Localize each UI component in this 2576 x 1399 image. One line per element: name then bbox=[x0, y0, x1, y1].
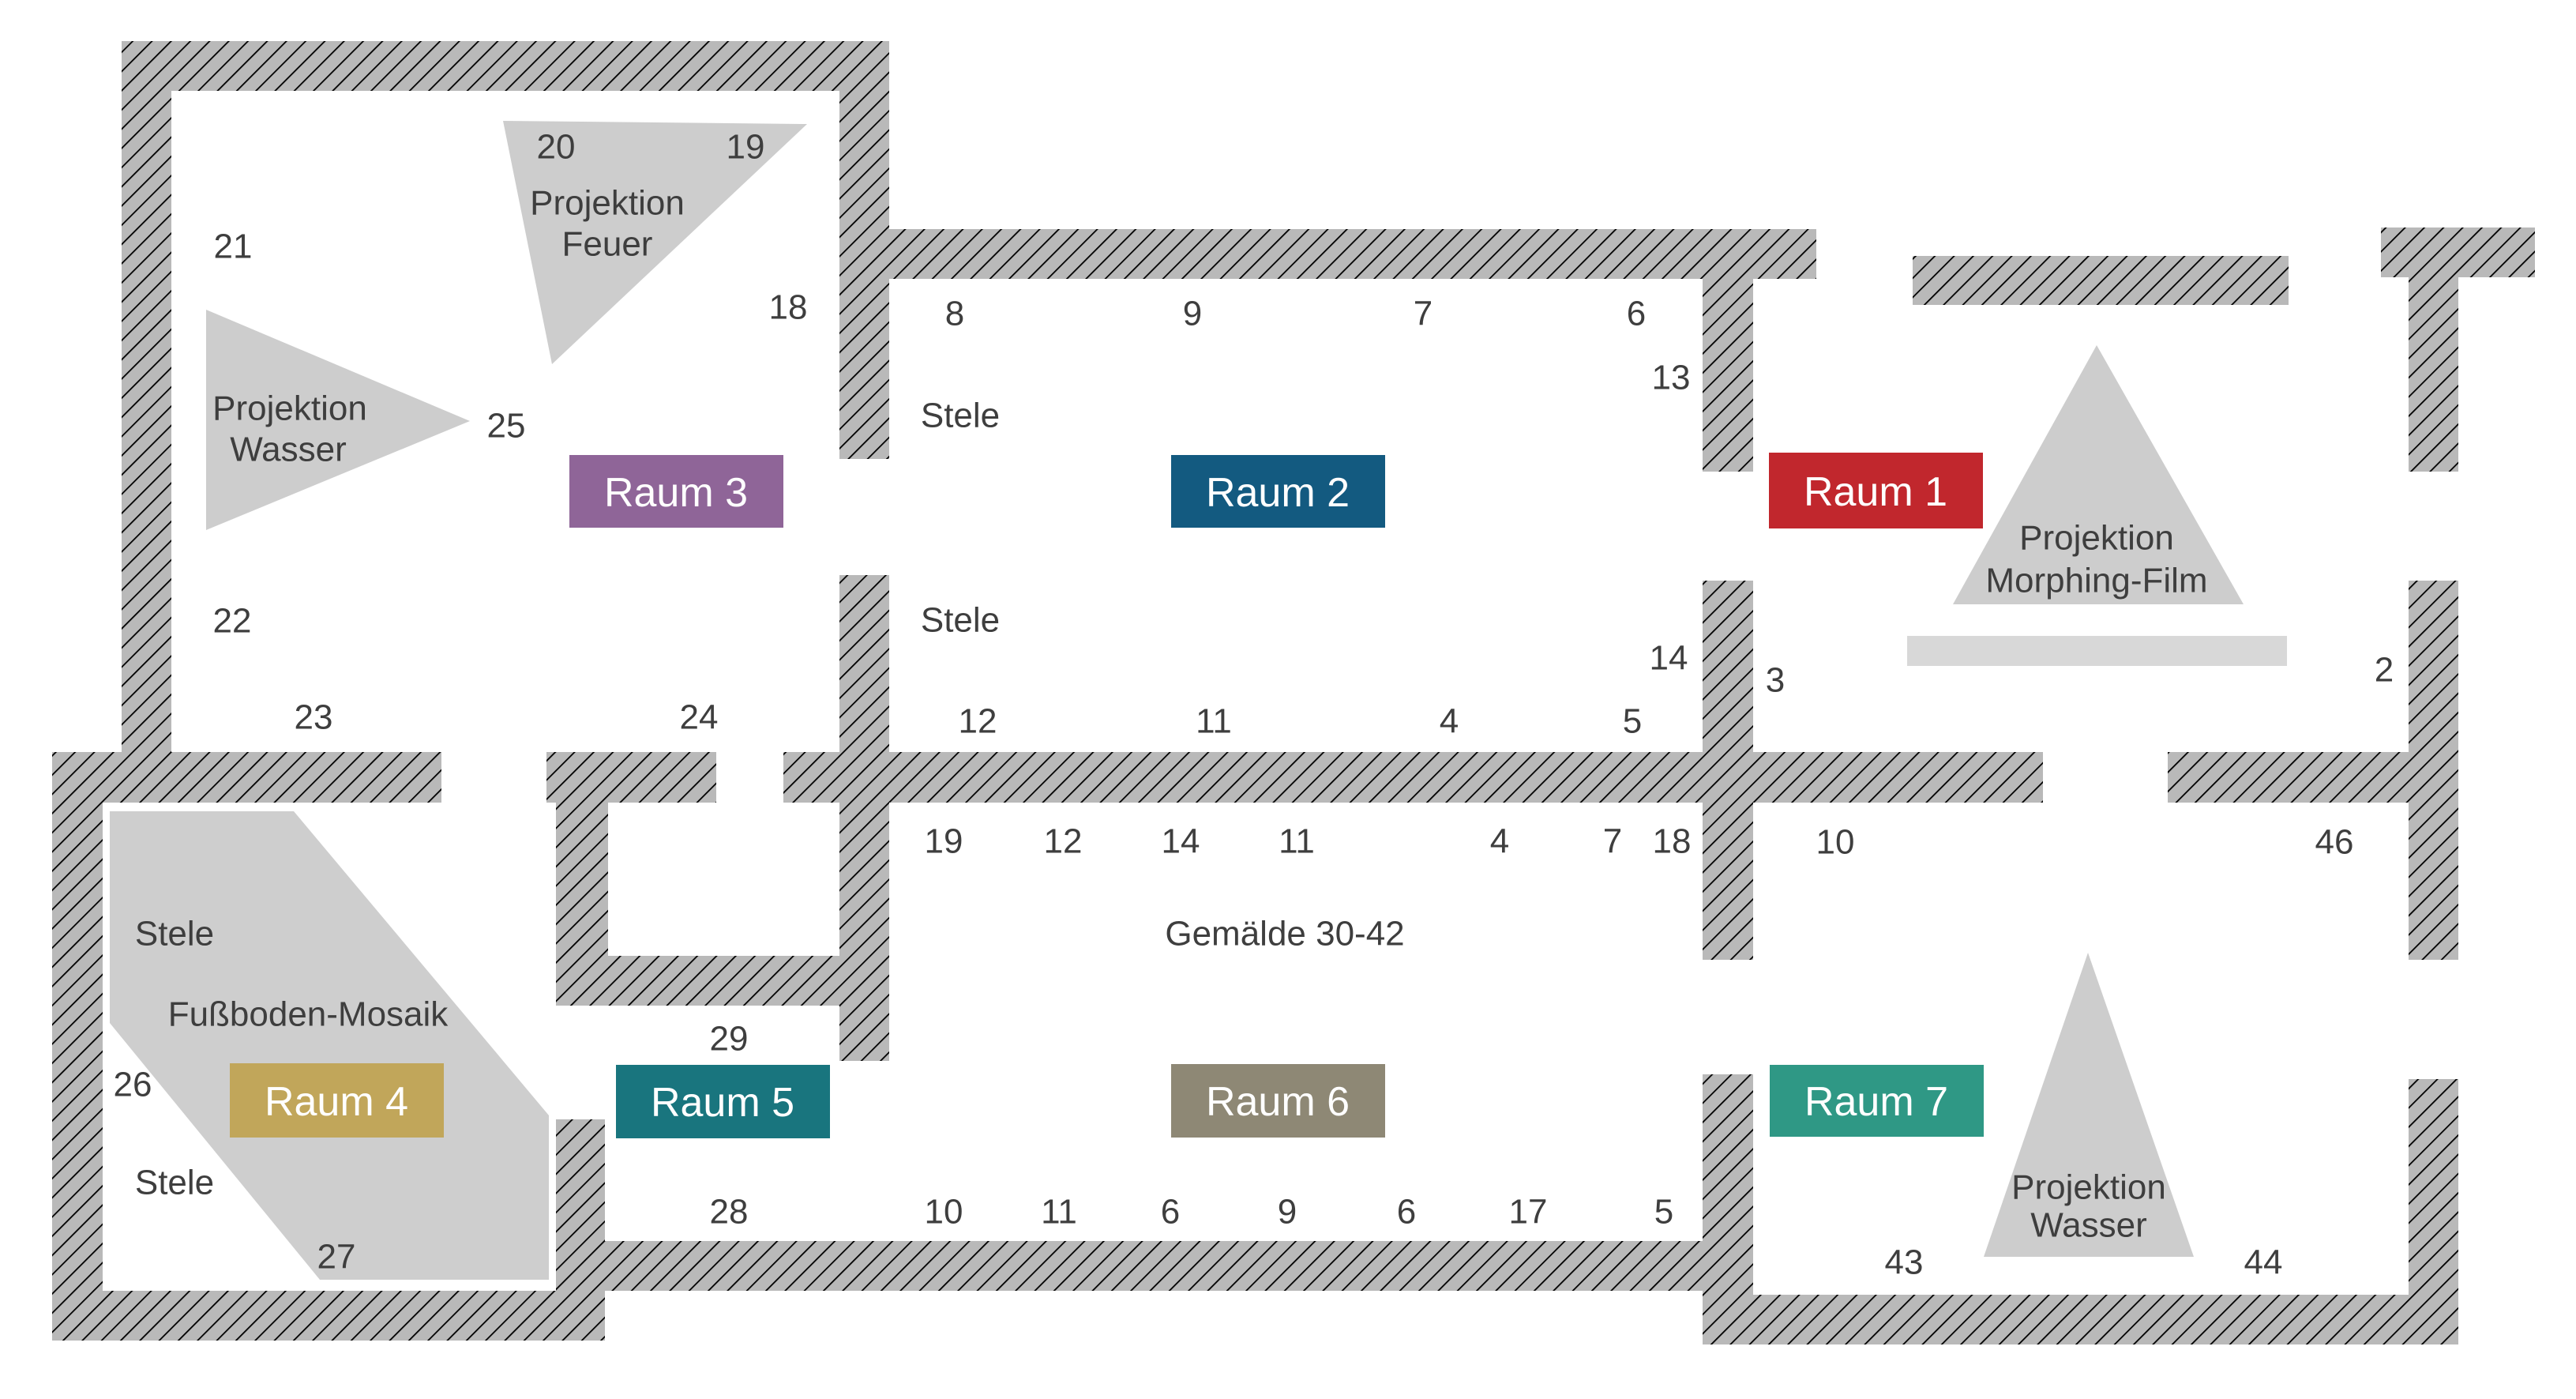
svg-text:Gemälde 30-42: Gemälde 30-42 bbox=[1165, 915, 1404, 953]
svg-text:7: 7 bbox=[1603, 822, 1622, 861]
svg-text:Wasser: Wasser bbox=[230, 431, 347, 469]
svg-text:10: 10 bbox=[925, 1193, 963, 1232]
svg-text:44: 44 bbox=[2244, 1243, 2283, 1282]
svg-text:22: 22 bbox=[213, 602, 252, 641]
svg-text:Raum 1: Raum 1 bbox=[1804, 469, 1947, 515]
svg-text:6: 6 bbox=[1397, 1193, 1416, 1232]
svg-text:9: 9 bbox=[1183, 295, 1202, 333]
svg-text:19: 19 bbox=[727, 128, 765, 167]
svg-text:Raum 4: Raum 4 bbox=[265, 1079, 408, 1125]
svg-text:23: 23 bbox=[295, 698, 333, 737]
svg-text:19: 19 bbox=[925, 822, 963, 861]
svg-text:12: 12 bbox=[1044, 822, 1083, 861]
svg-text:Projektion: Projektion bbox=[2019, 519, 2174, 558]
svg-text:Fußboden-Mosaik: Fußboden-Mosaik bbox=[168, 995, 449, 1034]
svg-text:Projektion: Projektion bbox=[2011, 1168, 2166, 1207]
svg-text:13: 13 bbox=[1652, 359, 1691, 397]
svg-text:7: 7 bbox=[1414, 295, 1433, 333]
svg-text:Raum 3: Raum 3 bbox=[604, 470, 748, 516]
svg-text:Projektion: Projektion bbox=[212, 389, 367, 428]
svg-text:Raum 5: Raum 5 bbox=[651, 1080, 794, 1126]
svg-text:5: 5 bbox=[1654, 1193, 1673, 1232]
svg-text:28: 28 bbox=[710, 1193, 749, 1232]
svg-text:17: 17 bbox=[1509, 1193, 1548, 1232]
svg-text:27: 27 bbox=[317, 1238, 356, 1277]
svg-text:Stele: Stele bbox=[921, 601, 1000, 640]
svg-text:29: 29 bbox=[710, 1020, 749, 1059]
svg-text:Projektion: Projektion bbox=[530, 184, 685, 223]
svg-text:11: 11 bbox=[1279, 822, 1315, 861]
svg-text:12: 12 bbox=[959, 702, 997, 741]
svg-text:20: 20 bbox=[537, 128, 576, 167]
svg-text:Feuer: Feuer bbox=[562, 225, 653, 264]
svg-text:Raum 7: Raum 7 bbox=[1804, 1079, 1948, 1125]
svg-text:3: 3 bbox=[1766, 661, 1785, 700]
svg-text:8: 8 bbox=[945, 295, 964, 333]
svg-text:18: 18 bbox=[769, 288, 808, 327]
svg-text:14: 14 bbox=[1162, 822, 1200, 861]
svg-text:Stele: Stele bbox=[135, 1164, 214, 1202]
svg-text:4: 4 bbox=[1440, 702, 1459, 741]
svg-text:11: 11 bbox=[1041, 1193, 1077, 1232]
svg-text:21: 21 bbox=[214, 228, 253, 266]
svg-text:4: 4 bbox=[1490, 822, 1509, 861]
svg-text:5: 5 bbox=[1623, 702, 1642, 741]
svg-text:6: 6 bbox=[1627, 295, 1646, 333]
svg-text:14: 14 bbox=[1650, 639, 1688, 678]
svg-text:2: 2 bbox=[2375, 651, 2394, 690]
svg-text:Raum 6: Raum 6 bbox=[1206, 1079, 1350, 1125]
svg-text:Raum 2: Raum 2 bbox=[1206, 470, 1350, 516]
svg-text:Stele: Stele bbox=[921, 397, 1000, 435]
svg-text:9: 9 bbox=[1278, 1193, 1297, 1232]
svg-text:Stele: Stele bbox=[135, 915, 214, 953]
svg-text:Wasser: Wasser bbox=[2030, 1206, 2147, 1245]
svg-text:10: 10 bbox=[1816, 823, 1855, 862]
svg-text:11: 11 bbox=[1196, 702, 1232, 741]
svg-text:25: 25 bbox=[487, 407, 526, 446]
svg-text:43: 43 bbox=[1885, 1243, 1924, 1282]
svg-text:6: 6 bbox=[1161, 1193, 1180, 1232]
svg-text:24: 24 bbox=[680, 698, 719, 737]
svg-text:46: 46 bbox=[2315, 823, 2354, 862]
svg-text:18: 18 bbox=[1653, 822, 1692, 861]
svg-text:26: 26 bbox=[114, 1066, 152, 1104]
svg-text:Morphing-Film: Morphing-Film bbox=[1985, 562, 2207, 600]
